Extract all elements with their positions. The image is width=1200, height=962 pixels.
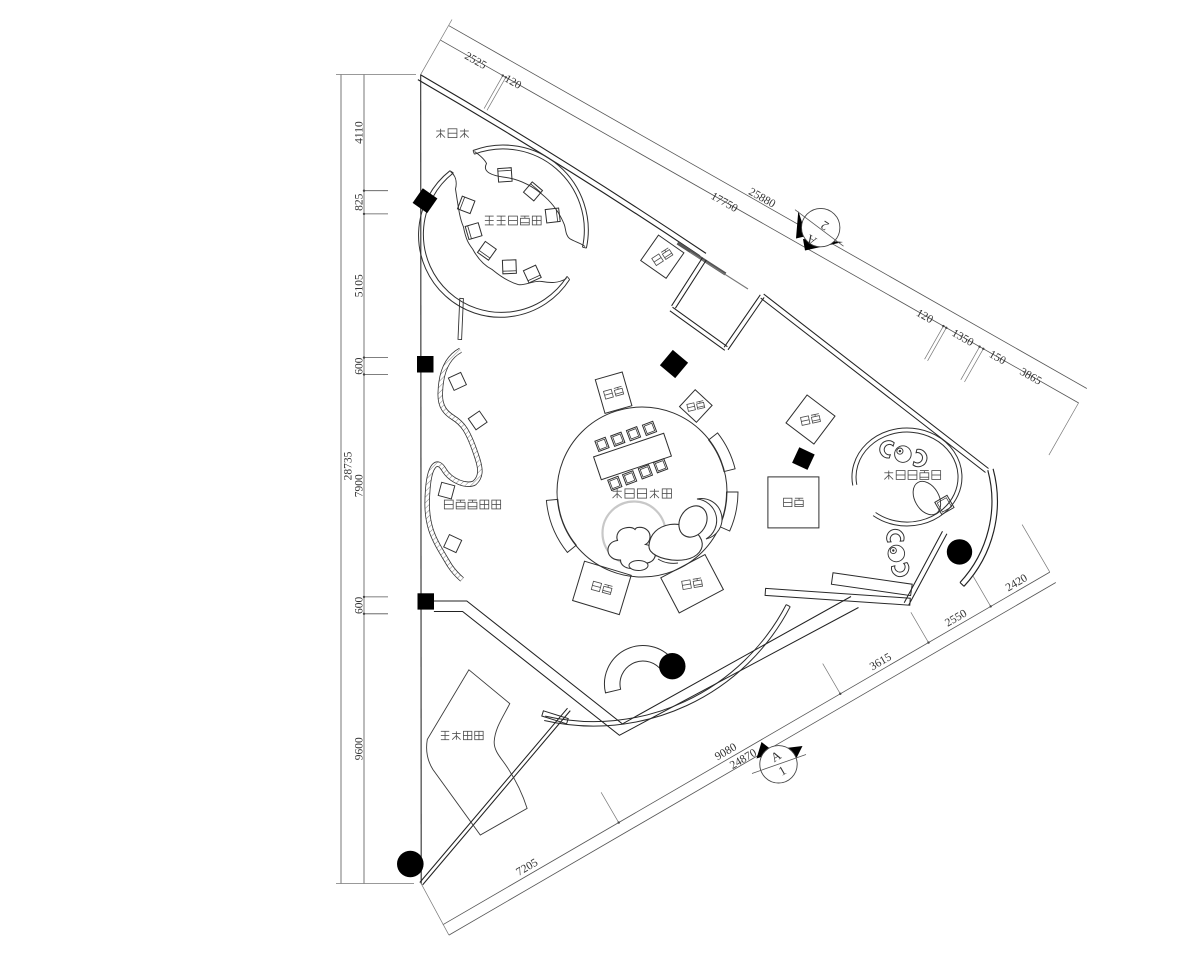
svg-text:4110: 4110	[353, 121, 365, 144]
svg-text:5105: 5105	[353, 274, 365, 297]
svg-text:9600: 9600	[353, 737, 365, 760]
svg-text:600: 600	[353, 357, 365, 375]
svg-text:600: 600	[353, 597, 365, 615]
svg-text:7900: 7900	[353, 474, 365, 497]
svg-text:825: 825	[353, 193, 365, 211]
svg-text:28735: 28735	[343, 451, 355, 480]
